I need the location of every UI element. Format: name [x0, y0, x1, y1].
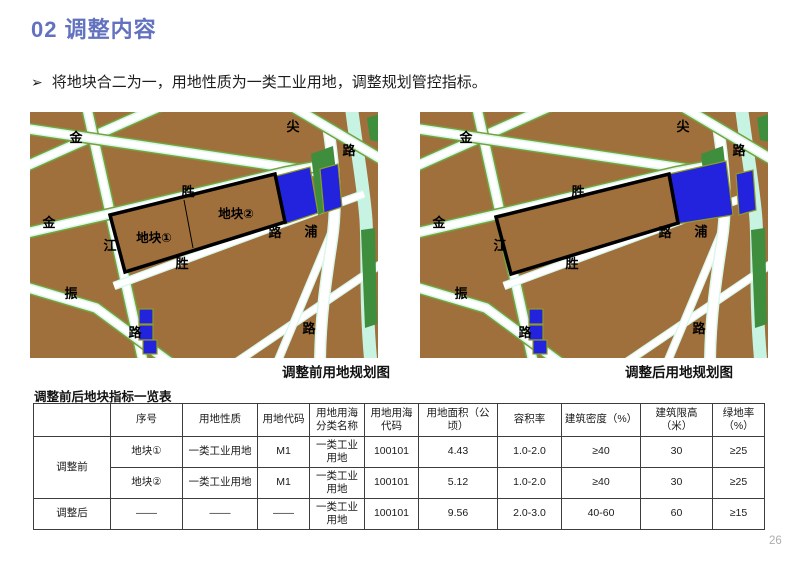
data-cell: 9.56 — [419, 499, 498, 530]
before-land-use-map: 地块① 地块② 金 尖 路 胜 金 江 路 浦 胜 振 路 路 — [30, 112, 378, 358]
data-cell: 100101 — [365, 499, 419, 530]
data-cell: —— — [258, 499, 310, 530]
data-cell: M1 — [258, 437, 310, 468]
data-cell: ≥25 — [713, 468, 765, 499]
page-number: 26 — [769, 535, 782, 547]
data-cell: 一类工业用地 — [183, 468, 258, 499]
road-label: 路 — [692, 321, 706, 336]
header-cell: 绿地率（%） — [713, 404, 765, 437]
data-cell: ≥25 — [713, 437, 765, 468]
bullet-arrow-icon: ➢ — [31, 74, 43, 91]
road-label: 金 — [41, 215, 56, 230]
after-land-use-map: 金 尖 路 胜 金 江 路 浦 胜 振 路 路 — [420, 112, 768, 358]
road-label: 浦 — [304, 224, 317, 239]
data-cell: 一类工业用地 — [310, 499, 365, 530]
header-cell: 建筑密度（%） — [562, 404, 641, 437]
map-caption-before: 调整前用地规划图 — [30, 361, 390, 381]
data-cell: ≥40 — [562, 468, 641, 499]
table-header-row: 序号 用地性质 用地代码 用地用海分类名称 用地用海代码 用地面积（公顷） 容积… — [34, 404, 765, 437]
road-label: 路 — [268, 225, 282, 240]
map-caption-after: 调整后用地规划图 — [420, 361, 733, 381]
data-cell: 地块① — [111, 437, 183, 468]
slide: 02 调整内容 ➢ 将地块合二为一，用地性质为一类工业用地，调整规划管控指标。 — [0, 0, 800, 566]
header-cell: 用地性质 — [183, 404, 258, 437]
table-row: 调整后 —— —— —— 一类工业用地 100101 9.56 2.0-3.0 … — [34, 499, 765, 530]
road-label: 路 — [302, 321, 316, 336]
data-cell: 一类工业用地 — [183, 437, 258, 468]
header-cell: 建筑限高（米） — [641, 404, 713, 437]
data-cell: 60 — [641, 499, 713, 530]
road-label: 胜 — [571, 184, 584, 199]
plot2-label: 地块② — [218, 206, 254, 221]
data-cell: 1.0-2.0 — [498, 437, 562, 468]
road-label: 路 — [342, 143, 356, 158]
road-label: 金 — [458, 130, 473, 145]
road-label: 路 — [732, 143, 746, 158]
data-cell: 2.0-3.0 — [498, 499, 562, 530]
data-cell: 100101 — [365, 468, 419, 499]
data-cell: 一类工业用地 — [310, 468, 365, 499]
header-cell: 用地用海代码 — [365, 404, 419, 437]
header-cell — [34, 404, 111, 437]
road-label: 胜 — [565, 256, 578, 271]
data-cell: 5.12 — [419, 468, 498, 499]
road-label: 胜 — [175, 256, 188, 271]
data-cell: M1 — [258, 468, 310, 499]
header-cell: 用地面积（公顷） — [419, 404, 498, 437]
page-title: 02 调整内容 — [31, 12, 157, 44]
table-row: 地块② 一类工业用地 M1 一类工业用地 100101 5.12 1.0-2.0… — [34, 468, 765, 499]
bullet-item: ➢ 将地块合二为一，用地性质为一类工业用地，调整规划管控指标。 — [31, 71, 487, 92]
data-cell: 30 — [641, 468, 713, 499]
data-cell: ≥40 — [562, 437, 641, 468]
road-label: 振 — [64, 286, 77, 301]
road-label: 浦 — [694, 224, 707, 239]
road-label: 江 — [103, 238, 116, 253]
header-cell: 序号 — [111, 404, 183, 437]
header-cell: 用地用海分类名称 — [310, 404, 365, 437]
data-cell: 4.43 — [419, 437, 498, 468]
header-cell: 容积率 — [498, 404, 562, 437]
data-cell: ≥15 — [713, 499, 765, 530]
data-cell: 地块② — [111, 468, 183, 499]
data-cell: 1.0-2.0 — [498, 468, 562, 499]
data-cell: 100101 — [365, 437, 419, 468]
data-cell: 30 — [641, 437, 713, 468]
data-cell: —— — [111, 499, 183, 530]
data-cell: 一类工业用地 — [310, 437, 365, 468]
header-cell: 用地代码 — [258, 404, 310, 437]
road-label: 路 — [128, 325, 142, 340]
table-row: 调整前 地块① 一类工业用地 M1 一类工业用地 100101 4.43 1.0… — [34, 437, 765, 468]
road-label: 尖 — [676, 119, 689, 134]
data-cell: —— — [183, 499, 258, 530]
road-label: 路 — [518, 325, 532, 340]
data-cell: 40-60 — [562, 499, 641, 530]
indicators-table: 序号 用地性质 用地代码 用地用海分类名称 用地用海代码 用地面积（公顷） 容积… — [33, 403, 765, 530]
road-label: 振 — [454, 286, 467, 301]
road-label: 胜 — [181, 184, 194, 199]
road-label: 金 — [431, 215, 446, 230]
plot1-label: 地块① — [136, 230, 172, 245]
group-cell: 调整前 — [34, 437, 111, 499]
group-cell: 调整后 — [34, 499, 111, 530]
bullet-text: 将地块合二为一，用地性质为一类工业用地，调整规划管控指标。 — [52, 71, 487, 92]
road-label: 江 — [493, 238, 506, 253]
road-label: 金 — [68, 130, 83, 145]
road-label: 路 — [658, 225, 672, 240]
road-label: 尖 — [286, 119, 299, 134]
